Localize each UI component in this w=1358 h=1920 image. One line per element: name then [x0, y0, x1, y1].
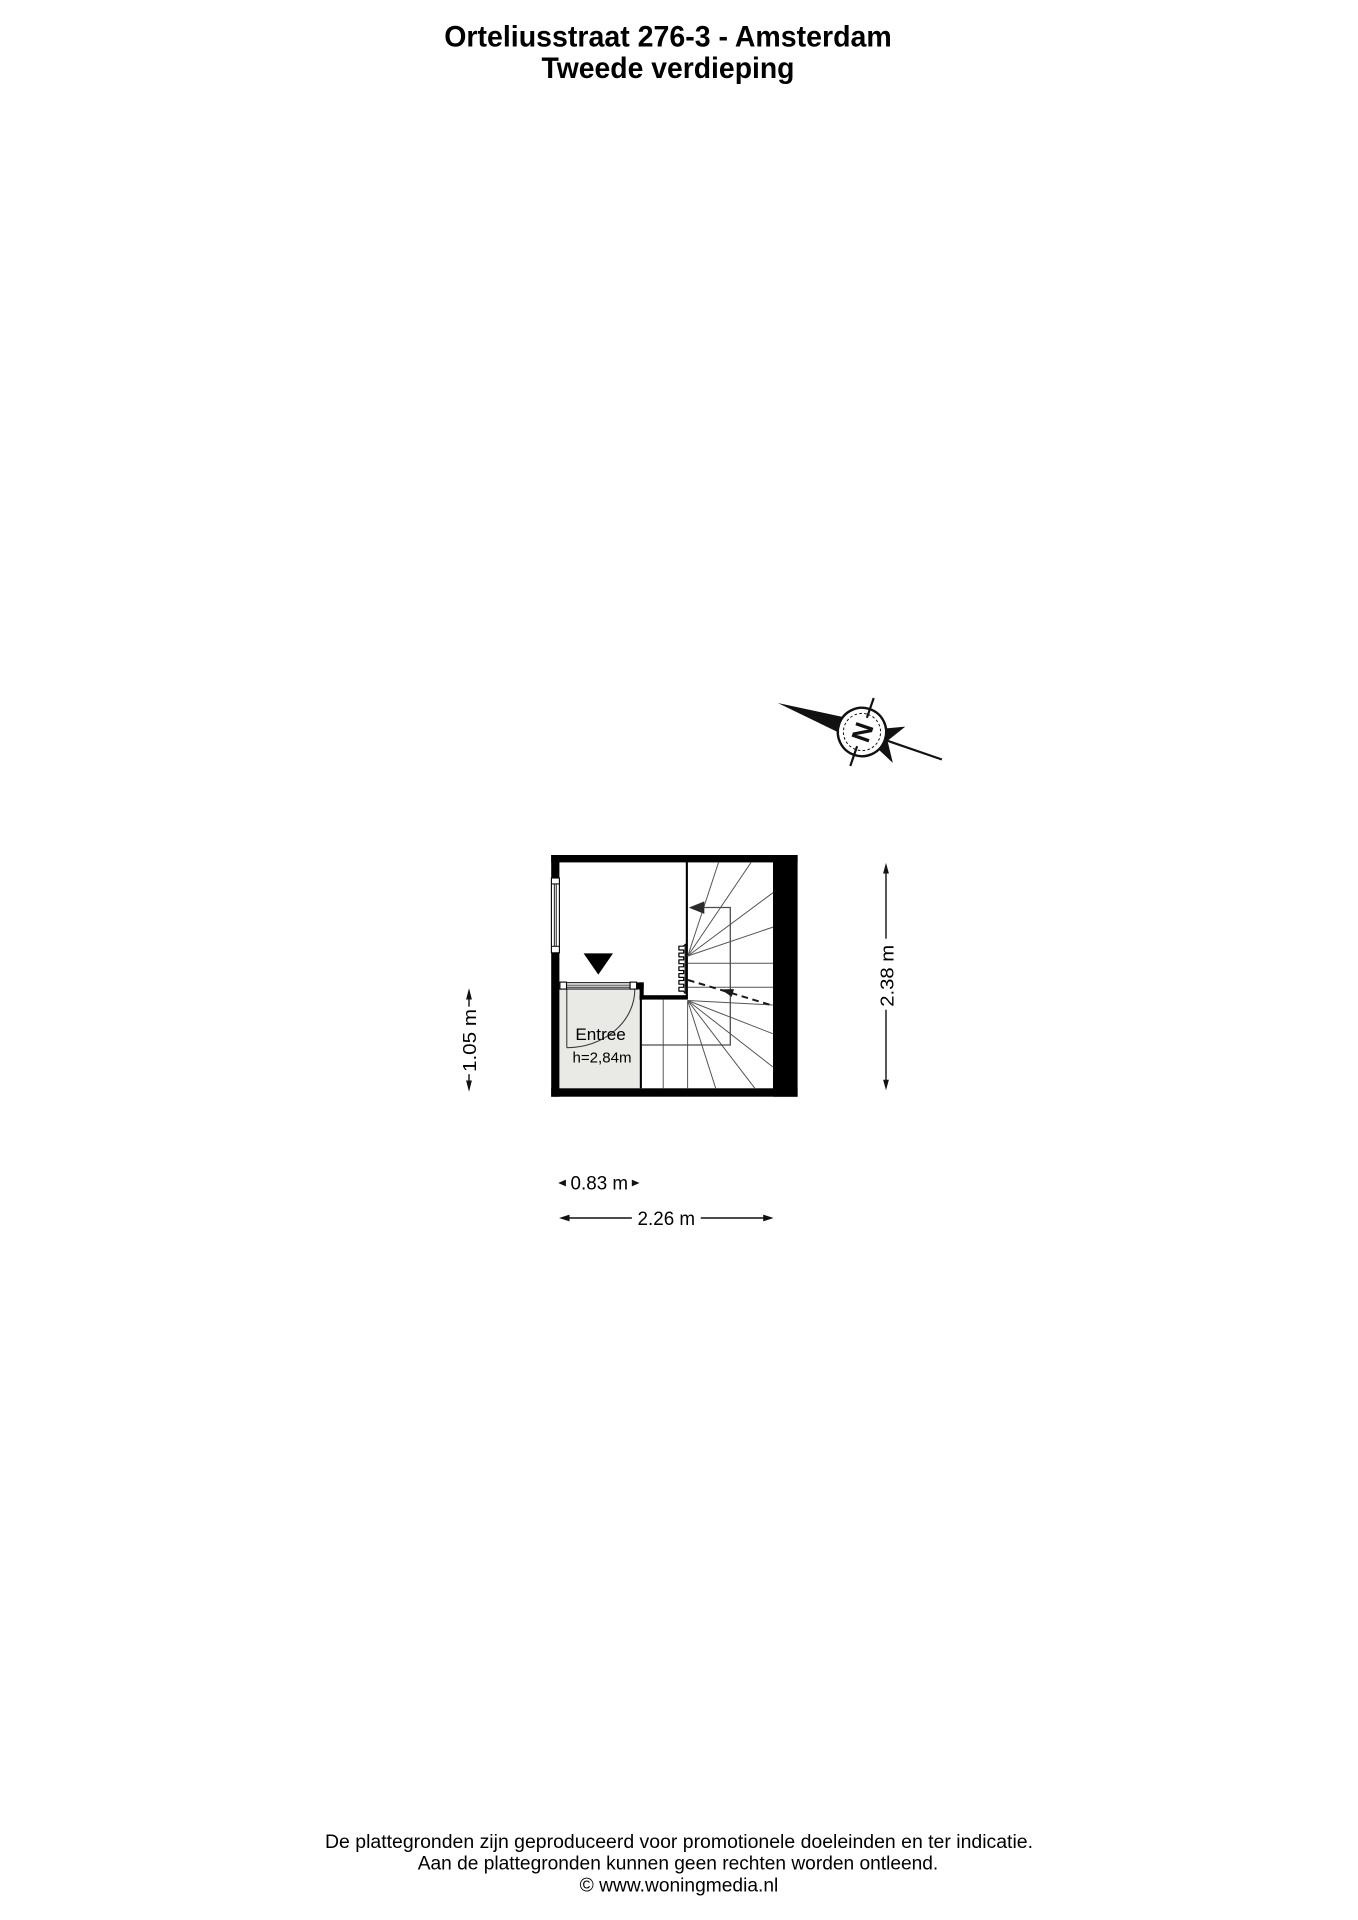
svg-text:0.83 m: 0.83 m — [571, 1173, 629, 1194]
svg-text:h=2,84m: h=2,84m — [573, 1051, 632, 1067]
svg-text:Tweede verdieping: Tweede verdieping — [542, 52, 795, 85]
svg-text:Aan de plattegronden kunnen ge: Aan de plattegronden kunnen geen rechten… — [418, 1854, 939, 1875]
svg-text:Orteliusstraat 276-3 - Amsterd: Orteliusstraat 276-3 - Amsterdam — [444, 21, 892, 54]
svg-text:1.05 m: 1.05 m — [459, 1009, 480, 1072]
svg-text:© www.woningmedia.nl: © www.woningmedia.nl — [580, 1876, 779, 1897]
svg-text:De plattegronden zijn geproduc: De plattegronden zijn geproduceerd voor … — [325, 1832, 1033, 1853]
svg-text:2.38 m: 2.38 m — [877, 945, 898, 1007]
svg-text:2.26 m: 2.26 m — [638, 1209, 696, 1230]
svg-text:Entree: Entree — [575, 1025, 626, 1044]
